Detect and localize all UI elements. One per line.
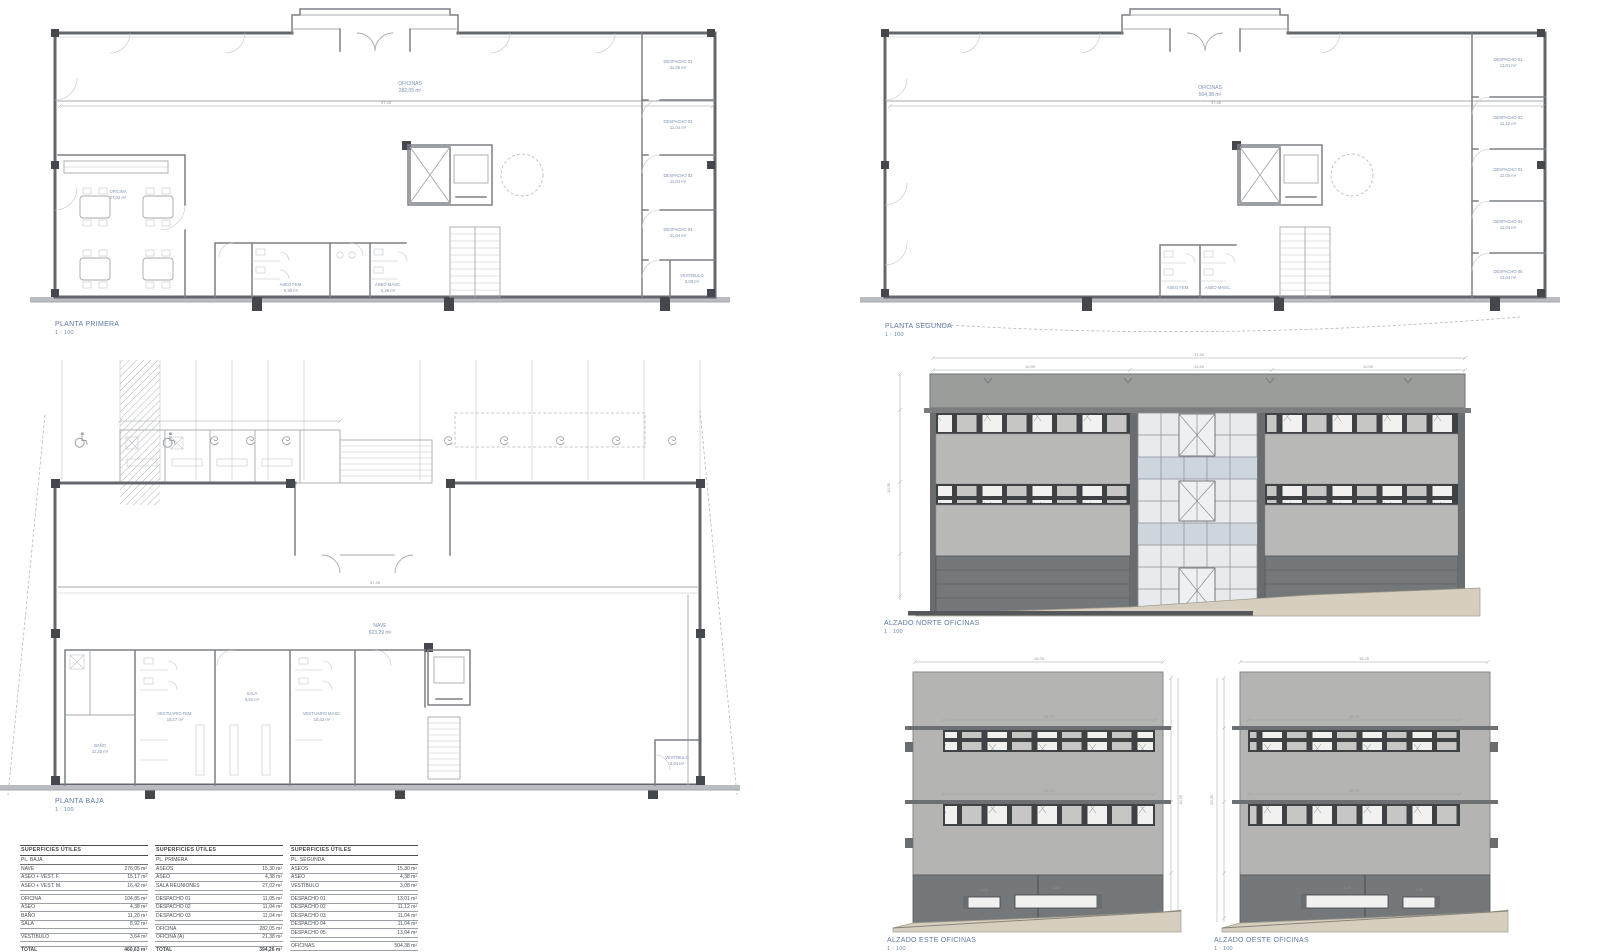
- table-row: VESTÍBULO3,08 m²: [290, 882, 418, 891]
- row-label: OFICINA: [156, 926, 176, 933]
- row-value: 13,01 m²: [397, 896, 417, 903]
- open-area-label: OFICINAS: [1198, 85, 1222, 91]
- motorbike-icon: [283, 437, 291, 445]
- dim-label: 10,90: [1363, 364, 1374, 369]
- dim-label: 10,35: [1209, 794, 1214, 805]
- wall-returns: [905, 742, 913, 848]
- terrain-dashed-line: [920, 317, 1520, 332]
- table-row: DESPACHO 0311,04 m²: [290, 912, 418, 921]
- table-row: OFICINA282,05 m²: [155, 924, 283, 934]
- row-label: ASEOS: [156, 866, 173, 873]
- row-label: OFICINAS: [291, 943, 315, 950]
- meeting-room-area: 27,02 m²: [110, 195, 127, 200]
- row-value: 4,38 m²: [400, 874, 417, 881]
- motorbike-icon: [557, 437, 565, 445]
- facade: [913, 672, 1163, 875]
- office-area: 13,01 m²: [1500, 63, 1517, 68]
- area-table-ground: SUPERFICIES ÚTILES PL. BAJA NAVE276,05 m…: [20, 845, 148, 952]
- base-slot-window: [1306, 895, 1388, 908]
- core-elevator-stair: [408, 145, 543, 297]
- dim-label: 37,45: [1194, 352, 1205, 357]
- table-row: SALA REUNIONES27,02 m²: [155, 882, 283, 891]
- motorbike-icon: [247, 437, 255, 445]
- office-label: DESPACHO 04: [1493, 219, 1523, 224]
- parapet: [924, 374, 1471, 413]
- office-label: DESPACHO 05: [1493, 269, 1523, 274]
- room-area: 11,20 m²: [92, 749, 109, 754]
- drawing-title-text: PLANTA PRIMERA: [55, 321, 119, 328]
- toilet-area: 5,36 m²: [381, 288, 396, 293]
- row-label: BAÑO: [21, 913, 35, 920]
- base-slot-window: [968, 897, 1000, 908]
- row-value: 11,05 m²: [263, 896, 282, 903]
- row-value: 504,38 m²: [394, 943, 417, 950]
- room-label: VESTÍBULO: [665, 755, 689, 760]
- room-area: 15,17 m²: [167, 717, 184, 722]
- drawing-title-text: ALZADO ESTE OFICINAS: [887, 937, 976, 944]
- exterior-stair: [340, 440, 432, 483]
- drawing-title-text: ALZADO OESTE OFICINAS: [1214, 937, 1309, 944]
- table-row: ASEO + VEST. F.15,17 m²: [20, 874, 148, 883]
- dim-label: 15,25: [1034, 656, 1045, 661]
- table-row: OFICINA (A)21,38 m²: [155, 934, 283, 943]
- facade: [1240, 672, 1490, 875]
- dim-label: 15,25: [1359, 656, 1370, 661]
- dim-label: 10,35: [1178, 794, 1183, 805]
- drawing-title: PLANTA PRIMERA 1 : 100: [55, 321, 119, 337]
- office-label: DESPACHO 02: [1493, 115, 1523, 120]
- row-label: TOTAL: [156, 947, 172, 952]
- dim-label: 37,45: [1211, 100, 1222, 105]
- base-slot-window: [1403, 897, 1435, 908]
- ground-strip: [0, 785, 740, 790]
- table-subheader: PL. BAJA: [20, 856, 148, 866]
- dim-label: 4,20: [1052, 885, 1061, 890]
- table-row: DESPACHO 0113,01 m²: [290, 894, 418, 904]
- toilet-label: ASEO FEM.: [1167, 285, 1190, 290]
- row-label: OFICINA: [21, 896, 41, 903]
- table-row: ASEO4,38 m²: [155, 874, 283, 883]
- drawing-title-text: PLANTA BAJA: [55, 798, 104, 805]
- glazing-line-and-dim: 37,45: [887, 100, 1545, 108]
- office-area: 11,12 m²: [1500, 121, 1517, 126]
- row-value: 3,08 m²: [400, 883, 417, 890]
- row-label: DESPACHO 01: [291, 896, 326, 903]
- row-label: DESPACHO 02: [291, 904, 326, 911]
- row-value: 8,92 m²: [130, 921, 147, 928]
- row-label: ASEO: [156, 874, 170, 881]
- dim-label: 37,45: [370, 580, 381, 585]
- table-body: NAVE276,05 m²ASEO + VEST. F.15,17 m²ASEO…: [20, 865, 148, 952]
- table-header: SUPERFICIES ÚTILES: [20, 845, 148, 856]
- entrance-canopy: [1122, 9, 1288, 51]
- room-label: BAÑO: [94, 743, 107, 748]
- row-label: VESTÍBULO: [21, 934, 49, 941]
- table-subheader: PL. PRIMERA: [155, 856, 283, 866]
- dim-label: 10,35: [886, 482, 891, 493]
- drawing-title: PLANTA SEGUNDA 1 : 100: [885, 323, 952, 339]
- base-slot-window: [1015, 895, 1097, 908]
- row-value: 11,04 m²: [263, 904, 282, 911]
- open-area-label: OFICINAS: [398, 81, 422, 87]
- dim-label: 37,45: [381, 100, 392, 105]
- row-label: ASEO: [21, 904, 35, 911]
- ramp-dashed-outline: [455, 413, 645, 447]
- row-value: 460,63 m²: [124, 947, 147, 952]
- west-elevation-drawing: 15,25 10,35 12,70 1: [1210, 650, 1510, 935]
- table-row: OFICINA104,85 m²: [20, 894, 148, 904]
- drawing-title: ALZADO NORTE OFICINAS 1 : 100: [884, 620, 980, 636]
- open-area-area: 623,29 m²: [369, 630, 392, 636]
- meeting-room-label: OFICINA: [110, 189, 127, 194]
- toilet-label: ASEO MASC.: [375, 282, 401, 287]
- core-elevator-stair: [1238, 145, 1373, 297]
- east-elevation: 15,25 10,35 12,70 1: [885, 650, 1185, 952]
- table-row: ASEOS15,30 m²: [290, 865, 418, 874]
- row-value: 21,38 m²: [262, 934, 282, 941]
- glazing-band: 37,45: [58, 580, 698, 785]
- office-area: 11,04 m²: [670, 179, 687, 184]
- office-label: DESPACHO 01: [1493, 57, 1523, 62]
- table-row: VESTÍBULO3,64 m²: [20, 933, 148, 943]
- window-strip: [1267, 486, 1456, 503]
- toilet-block: [215, 243, 407, 297]
- room-area: 16,42 m²: [314, 717, 331, 722]
- row-value: 104,85 m²: [124, 896, 147, 903]
- exterior-walls: [55, 33, 715, 297]
- row-label: DESPACHO 05: [291, 930, 326, 937]
- dim-label: 12,70: [1044, 714, 1055, 719]
- window-strip: [938, 415, 1128, 432]
- table-row: DESPACHO 0111,05 m²: [155, 894, 283, 904]
- table-row: ASEO4,38 m²: [290, 874, 418, 883]
- open-area-area: 504,38 m²: [1199, 92, 1222, 98]
- north-elevation: 37,45 10,90 12,40 10,90 10,35: [880, 348, 1510, 648]
- toilet-label: ASEO MASC.: [1205, 285, 1231, 290]
- row-value: 15,30 m²: [397, 866, 417, 873]
- east-elevation-drawing: 15,25 10,35 12,70 1: [885, 650, 1185, 935]
- row-value: 282,05 m²: [259, 926, 282, 933]
- table-row: SALA8,92 m²: [20, 921, 148, 930]
- row-value: 11,12 m²: [398, 904, 417, 911]
- wheelchair-icon: [75, 432, 87, 447]
- north-elevation-drawing: 37,45 10,90 12,40 10,90 10,35: [880, 348, 1510, 618]
- plot-boundary-dashed: [8, 410, 737, 795]
- row-value: 13,04 m²: [397, 930, 417, 937]
- row-label: SALA REUNIONES: [156, 883, 200, 890]
- room-label: VESTUARIO MASC.: [303, 711, 342, 716]
- dim-label: 12,70: [1349, 788, 1360, 793]
- row-label: DESPACHO 02: [156, 904, 191, 911]
- table-row: TOTAL394,26 m²: [155, 946, 283, 952]
- door-clearance-circle: [501, 154, 543, 196]
- row-value: 394,26 m²: [259, 947, 282, 952]
- table-body: ASEOS15,30 m²ASEO4,38 m²SALA REUNIONES27…: [155, 865, 283, 952]
- exterior-walls: [885, 33, 1545, 297]
- row-value: 276,05 m²: [124, 866, 147, 873]
- room-labels: OFICINAS 504,38 m² ASEO FEM. ASEO MASC. …: [1167, 57, 1524, 290]
- row-label: NAVE: [21, 866, 34, 873]
- area-table-second: SUPERFICIES ÚTILES PL. SEGUNDA ASEOS15,3…: [290, 845, 418, 952]
- table-row: NAVE276,05 m²: [20, 865, 148, 874]
- toilet-label: ASEO FEM.: [280, 282, 303, 287]
- table-subheader: PL. SEGUNDA: [290, 856, 418, 866]
- row-value: 15,17 m²: [127, 874, 147, 881]
- office-label: DESPACHO 03: [663, 173, 693, 178]
- table-row: DESPACHO 0211,04 m²: [155, 904, 283, 913]
- row-label: VESTÍBULO: [291, 883, 319, 890]
- meeting-tables: [80, 188, 173, 288]
- row-label: DESPACHO 03: [291, 913, 326, 920]
- area-table-first: SUPERFICIES ÚTILES PL. PRIMERA ASEOS15,3…: [155, 845, 283, 952]
- window-strip: [938, 486, 1128, 503]
- row-label: DESPACHO 03: [156, 913, 191, 920]
- row-label: ASEO: [291, 874, 305, 881]
- office-area: 13,04 m²: [1500, 275, 1517, 280]
- drawing-title-text: ALZADO NORTE OFICINAS: [884, 620, 980, 627]
- table-row: ASEO + VEST. M.16,42 m²: [20, 882, 148, 891]
- row-label: ASEO + VEST. M.: [21, 883, 61, 890]
- glass-door: [1179, 481, 1215, 521]
- table-row: DESPACHO 0311,04 m²: [155, 912, 283, 921]
- office-partition-column: [1472, 33, 1545, 297]
- row-value: 4,38 m²: [265, 874, 282, 881]
- office-area: 11,04 m²: [1500, 173, 1517, 178]
- office-area: 11,04 m²: [1500, 225, 1517, 230]
- vestibule-label: VESTÍBULO: [680, 273, 704, 278]
- entrance-canopy: [292, 9, 458, 51]
- table-row: DESPACHO 0211,12 m²: [290, 904, 418, 913]
- table-header: SUPERFICIES ÚTILES: [290, 845, 418, 856]
- table-header: SUPERFICIES ÚTILES: [155, 845, 283, 856]
- dim-label: 1,00: [980, 887, 989, 892]
- row-label: TOTAL: [21, 947, 37, 952]
- right-wing: [1257, 413, 1465, 613]
- motorbike-icon: [613, 437, 621, 445]
- first-floor-plan: 37,45: [30, 5, 730, 350]
- changing-rooms-block: [65, 650, 425, 785]
- second-floor-plan-drawing: 37,45: [860, 5, 1560, 350]
- window-door-swings: [55, 33, 615, 210]
- core-elevator-stair: [428, 650, 470, 779]
- table-row: ASEO4,38 m²: [20, 904, 148, 913]
- ground-floor-plan: 37,45: [0, 355, 740, 830]
- room-area: 8,92 m²: [245, 697, 260, 702]
- dim-label: 4,20: [1343, 885, 1352, 890]
- room-labels: NAVE 623,29 m² BAÑO 11,20 m² VESTUARIO F…: [92, 623, 690, 766]
- open-area-label: NAVE: [373, 623, 387, 629]
- plan-sheet: 37,45: [0, 0, 1600, 952]
- vestibule-area: 3,08 m²: [685, 279, 700, 284]
- structural-columns: [51, 479, 705, 799]
- motorbike-icon: [445, 437, 453, 445]
- table-row: OFICINAS504,38 m²: [290, 941, 418, 951]
- table-row: DESPACHO 0513,04 m²: [290, 929, 418, 938]
- entrance-door-arcs: [322, 555, 413, 573]
- row-value: 27,02 m²: [262, 883, 282, 890]
- table-row: ASEOS15,30 m²: [155, 865, 283, 874]
- office-area: 11,04 m²: [670, 233, 687, 238]
- row-label: SALA: [21, 921, 34, 928]
- row-label: OFICINA (A): [156, 934, 184, 941]
- motorbike-icon: [501, 437, 509, 445]
- row-value: 11,04 m²: [398, 913, 417, 920]
- glass-door: [1179, 414, 1215, 456]
- row-label: DESPACHO 04: [291, 921, 326, 928]
- row-value: 4,38 m²: [130, 904, 147, 911]
- office-partition-column: [642, 33, 715, 297]
- drawing-title-text: PLANTA SEGUNDA: [885, 323, 952, 330]
- dim-label: 1,00: [1415, 887, 1424, 892]
- row-value: 15,30 m²: [262, 866, 282, 873]
- glazing-line-and-dim: 37,45: [57, 100, 715, 108]
- room-label: VESTUARIO FEM.: [157, 711, 192, 716]
- table-row: BAÑO11,20 m²: [20, 912, 148, 921]
- row-label: DESPACHO 01: [156, 896, 191, 903]
- drawing-scale: 1 : 100: [55, 329, 119, 337]
- center-curtain-wall: [1138, 413, 1257, 613]
- left-wing: [930, 413, 1138, 613]
- table-body: ASEOS15,30 m²ASEO4,38 m²VESTÍBULO3,08 m²…: [290, 865, 418, 952]
- office-label: DESPACHO 02: [663, 119, 693, 124]
- row-value: 3,64 m²: [130, 934, 147, 941]
- drawing-title: ALZADO OESTE OFICINAS 1 : 100: [1214, 937, 1309, 952]
- open-area-area: 282,05 m²: [399, 88, 422, 94]
- room-labels: OFICINAS 282,05 m² OFICINA 27,02 m² ASEO…: [110, 59, 705, 293]
- window-strip: [1267, 415, 1456, 432]
- ground-floor-plan-drawing: 37,45: [0, 355, 740, 830]
- dim-label: 12,70: [1044, 788, 1055, 793]
- office-area: 11,05 m²: [670, 65, 687, 70]
- dim-label: 12,40: [1194, 364, 1205, 369]
- motorbike-icon: [211, 437, 219, 445]
- row-label: ASEO + VEST. F.: [21, 874, 60, 881]
- dim-label: 10,90: [1025, 364, 1036, 369]
- drawing-scale: 1 : 100: [884, 628, 980, 636]
- row-value: 11,20 m²: [128, 913, 147, 920]
- drawing-title: PLANTA BAJA 1 : 100: [55, 798, 104, 814]
- office-label: DESPACHO 03: [1493, 167, 1523, 172]
- row-label: ASEOS: [291, 866, 308, 873]
- row-value: 11,04 m²: [263, 913, 282, 920]
- second-floor-plan: 37,45: [860, 5, 1560, 350]
- toilet-area: 5,30 m²: [284, 288, 299, 293]
- row-value: 16,42 m²: [127, 883, 147, 890]
- wall-returns: [1490, 742, 1498, 848]
- drawing-scale: 1 : 100: [887, 945, 976, 952]
- west-elevation: 15,25 10,35 12,70 1: [1210, 650, 1510, 952]
- room-label: SALA: [247, 691, 258, 696]
- drawing-title: ALZADO ESTE OFICINAS 1 : 100: [887, 937, 976, 952]
- dim-label: 12,70: [1349, 714, 1360, 719]
- first-floor-plan-drawing: 37,45: [30, 5, 730, 350]
- row-value: 11,04 m²: [398, 921, 417, 928]
- office-label: DESPACHO 01: [663, 59, 693, 64]
- table-row: DESPACHO 0411,04 m²: [290, 921, 418, 930]
- room-area: 3,64 m²: [670, 761, 685, 766]
- drawing-scale: 1 : 100: [1214, 945, 1309, 952]
- table-row: TOTAL460,63 m²: [20, 946, 148, 952]
- drawing-scale: 1 : 100: [55, 806, 104, 814]
- office-area: 11,04 m²: [670, 125, 687, 130]
- office-label: DESPACHO 04: [663, 227, 693, 232]
- drawing-scale: 1 : 100: [885, 331, 952, 339]
- entrance-door-arcs: [357, 33, 393, 51]
- window-door-swings: [885, 33, 1340, 265]
- motorbike-icon: [669, 437, 677, 445]
